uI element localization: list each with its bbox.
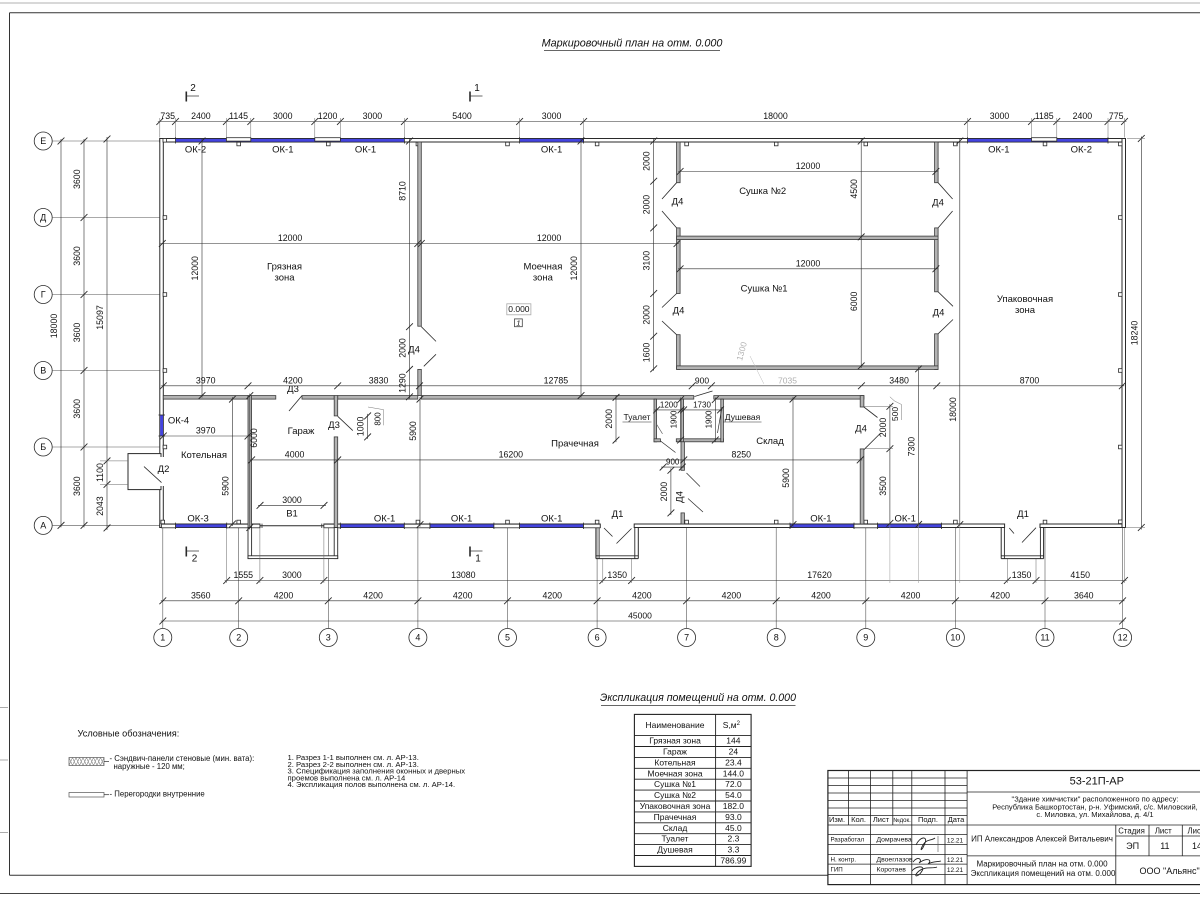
svg-text:3600: 3600 bbox=[72, 246, 82, 266]
svg-text:ОК-2: ОК-2 bbox=[1071, 145, 1092, 156]
svg-text:7300: 7300 bbox=[907, 437, 917, 457]
svg-text:1350: 1350 bbox=[1012, 570, 1032, 580]
svg-text:54.0: 54.0 bbox=[725, 790, 742, 800]
svg-text:Г: Г bbox=[41, 290, 46, 300]
svg-text:1730: 1730 bbox=[693, 400, 711, 409]
svg-text:Коротаев: Коротаев bbox=[877, 867, 907, 874]
svg-text:Д4: Д4 bbox=[673, 306, 685, 317]
svg-text:2: 2 bbox=[190, 83, 196, 94]
svg-text:ОК-1: ОК-1 bbox=[355, 145, 376, 156]
svg-text:2000: 2000 bbox=[604, 409, 614, 429]
svg-text:18000: 18000 bbox=[948, 397, 958, 422]
svg-text:Д1: Д1 bbox=[612, 509, 624, 520]
svg-text:Туалет: Туалет bbox=[624, 412, 651, 422]
svg-text:5900: 5900 bbox=[221, 476, 231, 496]
svg-text:В: В bbox=[40, 366, 46, 376]
svg-text:ОК-4: ОК-4 bbox=[168, 416, 189, 427]
svg-text:5900: 5900 bbox=[781, 468, 791, 488]
svg-text:3000: 3000 bbox=[282, 495, 302, 505]
svg-text:3830: 3830 bbox=[369, 375, 389, 385]
svg-text:- Перегородки внутренние: - Перегородки внутренние bbox=[110, 790, 205, 799]
svg-text:Д4: Д4 bbox=[408, 345, 420, 356]
svg-text:Наименование: Наименование bbox=[646, 720, 705, 730]
svg-text:800: 800 bbox=[374, 412, 383, 426]
svg-text:Кол.: Кол. bbox=[851, 815, 866, 824]
svg-text:Маркировочный план на отм. 0.0: Маркировочный план на отм. 0.000 bbox=[542, 38, 723, 50]
svg-text:Лист: Лист bbox=[1188, 826, 1200, 835]
svg-text:735: 735 bbox=[160, 111, 175, 121]
svg-text:1145: 1145 bbox=[229, 111, 248, 121]
svg-text:Условные обозначения:: Условные обозначения: bbox=[78, 729, 180, 739]
svg-text:182.0: 182.0 bbox=[723, 801, 745, 811]
svg-text:3000: 3000 bbox=[542, 111, 562, 121]
svg-text:4200: 4200 bbox=[722, 590, 742, 600]
svg-text:Экспликация помещений на отм.: Экспликация помещений на отм. 0.000 bbox=[600, 692, 796, 704]
svg-text:3600: 3600 bbox=[72, 476, 82, 496]
svg-text:ОК-1: ОК-1 bbox=[272, 145, 293, 156]
svg-text:Д4: Д4 bbox=[932, 198, 944, 209]
svg-text:13080: 13080 bbox=[451, 570, 476, 580]
svg-text:Сушка №2: Сушка №2 bbox=[654, 790, 696, 800]
svg-text:3: 3 bbox=[326, 633, 331, 643]
svg-text:2400: 2400 bbox=[191, 111, 211, 121]
svg-text:4200: 4200 bbox=[453, 590, 473, 600]
svg-text:2000: 2000 bbox=[659, 482, 669, 502]
svg-text:1600: 1600 bbox=[642, 343, 652, 363]
svg-text:3000: 3000 bbox=[273, 111, 293, 121]
svg-text:12000: 12000 bbox=[796, 258, 821, 268]
svg-text:3000: 3000 bbox=[282, 570, 302, 580]
svg-text:15097: 15097 bbox=[95, 305, 105, 330]
svg-text:0.000: 0.000 bbox=[508, 304, 530, 314]
svg-text:12.21: 12.21 bbox=[947, 867, 964, 874]
svg-text:3560: 3560 bbox=[191, 590, 211, 600]
svg-text:6000: 6000 bbox=[849, 292, 859, 312]
svg-text:1350: 1350 bbox=[607, 570, 627, 580]
svg-text:23.4: 23.4 bbox=[725, 757, 742, 767]
svg-text:12: 12 bbox=[1118, 633, 1128, 643]
svg-text:14: 14 bbox=[1192, 841, 1200, 851]
svg-text:2000: 2000 bbox=[642, 195, 652, 215]
svg-text:1200: 1200 bbox=[318, 111, 338, 121]
svg-text:2000: 2000 bbox=[642, 305, 652, 325]
svg-text:2000: 2000 bbox=[878, 418, 888, 438]
svg-text:Домрачева: Домрачева bbox=[877, 837, 912, 844]
svg-text:Моечная зона: Моечная зона bbox=[647, 768, 702, 778]
svg-text:12000: 12000 bbox=[537, 233, 562, 243]
svg-text:17620: 17620 bbox=[807, 570, 832, 580]
svg-text:Упаковочная: Упаковочная bbox=[997, 294, 1053, 305]
svg-text:Дата: Дата bbox=[948, 815, 965, 824]
svg-text:1900: 1900 bbox=[670, 410, 679, 428]
svg-text:Прачечная: Прачечная bbox=[654, 812, 697, 822]
svg-text:6000: 6000 bbox=[249, 428, 259, 448]
svg-text:3600: 3600 bbox=[72, 323, 82, 343]
svg-text:ОК-1: ОК-1 bbox=[541, 145, 562, 156]
svg-text:10: 10 bbox=[950, 633, 960, 643]
svg-text:900: 900 bbox=[695, 375, 709, 385]
svg-text:12000: 12000 bbox=[190, 256, 200, 281]
svg-text:45.0: 45.0 bbox=[725, 823, 742, 833]
svg-text:2000: 2000 bbox=[398, 338, 408, 358]
svg-text:12.21: 12.21 bbox=[947, 857, 964, 864]
svg-text:45000: 45000 bbox=[628, 611, 652, 621]
svg-text:8710: 8710 bbox=[398, 181, 408, 201]
svg-text:ООО "Альянс": ООО "Альянс" bbox=[1140, 866, 1200, 876]
svg-text:3500: 3500 bbox=[878, 476, 888, 496]
svg-text:11: 11 bbox=[1160, 841, 1169, 851]
svg-text:Стадия: Стадия bbox=[1118, 826, 1145, 835]
svg-text:2400: 2400 bbox=[1073, 111, 1093, 121]
svg-text:ОК-3: ОК-3 bbox=[187, 514, 208, 525]
svg-text:Лист: Лист bbox=[1155, 826, 1172, 835]
svg-text:4500: 4500 bbox=[849, 179, 859, 199]
svg-text:Д1: Д1 bbox=[1017, 509, 1029, 520]
svg-text:Д3: Д3 bbox=[328, 420, 340, 431]
svg-text:786.99: 786.99 bbox=[720, 856, 746, 866]
svg-text:5: 5 bbox=[505, 633, 510, 643]
svg-text:4200: 4200 bbox=[901, 590, 921, 600]
svg-text:Д4: Д4 bbox=[675, 491, 686, 503]
svg-text:900: 900 bbox=[666, 458, 680, 467]
svg-text:4000: 4000 bbox=[285, 449, 305, 459]
svg-text:12000: 12000 bbox=[569, 256, 579, 281]
svg-text:Д2: Д2 bbox=[158, 464, 170, 475]
svg-text:Б: Б bbox=[40, 442, 46, 452]
svg-text:4200: 4200 bbox=[990, 590, 1010, 600]
svg-text:В1: В1 bbox=[286, 509, 298, 520]
svg-text:3000: 3000 bbox=[990, 111, 1010, 121]
svg-text:12785: 12785 bbox=[544, 375, 569, 385]
svg-text:4200: 4200 bbox=[274, 590, 294, 600]
svg-text:ОК-1: ОК-1 bbox=[541, 514, 562, 525]
svg-text:Грязная зона: Грязная зона bbox=[649, 736, 701, 746]
svg-text:3600: 3600 bbox=[72, 169, 82, 189]
svg-text:Гараж: Гараж bbox=[288, 426, 315, 437]
svg-text:Д4: Д4 bbox=[672, 197, 684, 208]
svg-text:18000: 18000 bbox=[49, 314, 59, 339]
svg-text:2000: 2000 bbox=[642, 151, 652, 171]
svg-text:12000: 12000 bbox=[796, 161, 821, 171]
svg-text:ОК-1: ОК-1 bbox=[451, 514, 472, 525]
svg-text:Склад: Склад bbox=[756, 436, 784, 447]
svg-text:2: 2 bbox=[192, 554, 198, 565]
svg-text:Маркировочный план на отм. 0.0: Маркировочный план на отм. 0.000 bbox=[976, 860, 1108, 869]
svg-text:500: 500 bbox=[890, 407, 900, 421]
svg-text:4200: 4200 bbox=[632, 590, 652, 600]
svg-text:Склад: Склад bbox=[663, 823, 688, 833]
svg-text:8700: 8700 bbox=[1020, 375, 1040, 385]
svg-text:4. Экспликация полов выполнена: 4. Экспликация полов выполнена см. л. АР… bbox=[288, 780, 456, 789]
svg-text:3600: 3600 bbox=[72, 399, 82, 419]
svg-text:Е: Е bbox=[40, 136, 46, 146]
svg-text:53-21П-АР: 53-21П-АР bbox=[1070, 776, 1124, 788]
svg-text:2043: 2043 bbox=[95, 496, 105, 516]
svg-text:93.0: 93.0 bbox=[725, 812, 742, 822]
svg-text:ГИП: ГИП bbox=[831, 867, 843, 874]
svg-text:№док.: №док. bbox=[893, 817, 911, 824]
svg-text:наружные - 120 мм;: наружные - 120 мм; bbox=[114, 762, 185, 771]
svg-text:1290: 1290 bbox=[398, 373, 408, 393]
svg-text:3970: 3970 bbox=[196, 375, 216, 385]
svg-text:1555: 1555 bbox=[234, 570, 254, 580]
svg-text:11: 11 bbox=[1040, 633, 1049, 643]
svg-text:4200: 4200 bbox=[811, 590, 831, 600]
svg-text:1100: 1100 bbox=[95, 463, 105, 482]
svg-text:Экспликация помещений на отм.: Экспликация помещений на отм. 0.000 bbox=[971, 869, 1116, 878]
svg-text:3.3: 3.3 bbox=[727, 845, 739, 855]
svg-text:2: 2 bbox=[236, 633, 241, 643]
svg-text:зона: зона bbox=[1015, 305, 1036, 316]
svg-text:ОК-1: ОК-1 bbox=[374, 514, 395, 525]
svg-text:Сушка №2: Сушка №2 bbox=[739, 186, 786, 197]
svg-text:Д: Д bbox=[40, 213, 46, 223]
svg-text:8250: 8250 bbox=[732, 449, 752, 459]
svg-text:1900: 1900 bbox=[704, 410, 713, 428]
svg-text:24: 24 bbox=[729, 747, 739, 757]
svg-text:144.0: 144.0 bbox=[723, 768, 745, 778]
svg-text:Моечная: Моечная bbox=[523, 262, 562, 273]
svg-text:Гараж: Гараж bbox=[663, 747, 687, 757]
svg-text:Д4: Д4 bbox=[933, 308, 945, 319]
svg-text:5900: 5900 bbox=[408, 421, 418, 441]
svg-text:ОК-1: ОК-1 bbox=[810, 514, 831, 525]
svg-text:Котельная: Котельная bbox=[654, 757, 696, 767]
svg-text:72.0: 72.0 bbox=[725, 779, 742, 789]
svg-text:Прачечная: Прачечная bbox=[551, 439, 599, 450]
svg-text:4200: 4200 bbox=[543, 590, 563, 600]
svg-text:5400: 5400 bbox=[452, 111, 472, 121]
svg-text:16200: 16200 bbox=[499, 449, 524, 459]
svg-text:Подп.: Подп. bbox=[918, 815, 938, 824]
svg-text:ЭП: ЭП bbox=[1126, 841, 1139, 851]
svg-text:144: 144 bbox=[726, 736, 740, 746]
svg-text:1200: 1200 bbox=[660, 400, 678, 409]
svg-text:18240: 18240 bbox=[1129, 321, 1139, 346]
svg-text:зона: зона bbox=[274, 273, 295, 284]
svg-text:зона: зона bbox=[533, 273, 554, 284]
svg-text:Грязная: Грязная bbox=[267, 262, 302, 273]
svg-text:4200: 4200 bbox=[283, 375, 303, 385]
svg-text:775: 775 bbox=[1109, 111, 1124, 121]
svg-text:Туалет: Туалет bbox=[662, 834, 689, 844]
svg-text:Д4: Д4 bbox=[855, 424, 867, 435]
svg-text:ОК-1: ОК-1 bbox=[988, 145, 1009, 156]
svg-text:1: 1 bbox=[474, 83, 480, 94]
svg-text:Двоеглазов: Двоеглазов bbox=[877, 857, 914, 864]
svg-text:Н. контр.: Н. контр. bbox=[831, 857, 857, 864]
svg-text:2.3: 2.3 bbox=[727, 834, 739, 844]
svg-text:ИП Александров Алексей Виталье: ИП Александров Алексей Витальевич bbox=[971, 835, 1113, 844]
svg-text:Разработал: Разработал bbox=[831, 837, 865, 844]
svg-text:12.21: 12.21 bbox=[947, 838, 964, 845]
svg-text:12000: 12000 bbox=[278, 233, 303, 243]
svg-text:4: 4 bbox=[415, 633, 420, 643]
svg-text:6: 6 bbox=[595, 633, 600, 643]
svg-text:1: 1 bbox=[475, 554, 481, 565]
svg-text:Сушка №1: Сушка №1 bbox=[654, 779, 696, 789]
svg-text:3640: 3640 bbox=[1074, 590, 1094, 600]
svg-text:Душевая: Душевая bbox=[725, 412, 761, 422]
svg-text:3970: 3970 bbox=[196, 426, 216, 436]
svg-text:8: 8 bbox=[774, 633, 779, 643]
svg-text:ОК-1: ОК-1 bbox=[895, 514, 916, 525]
svg-text:1185: 1185 bbox=[1035, 111, 1054, 121]
svg-text:3100: 3100 bbox=[642, 251, 652, 271]
svg-text:1: 1 bbox=[516, 318, 520, 327]
svg-text:1000: 1000 bbox=[356, 417, 366, 437]
svg-text:1: 1 bbox=[160, 633, 165, 643]
svg-text:Котельная: Котельная bbox=[181, 450, 227, 461]
svg-text:7035: 7035 bbox=[778, 375, 797, 385]
svg-text:ОК-2: ОК-2 bbox=[185, 145, 206, 156]
svg-text:Упаковочная зона: Упаковочная зона bbox=[640, 801, 711, 811]
svg-text:А: А bbox=[40, 521, 46, 531]
svg-text:3000: 3000 bbox=[363, 111, 383, 121]
svg-text:4200: 4200 bbox=[363, 590, 383, 600]
svg-text:3480: 3480 bbox=[889, 375, 909, 385]
svg-text:Лист: Лист bbox=[873, 815, 890, 824]
svg-text:9: 9 bbox=[863, 633, 868, 643]
svg-text:Сушка №1: Сушка №1 bbox=[741, 283, 788, 294]
svg-text:18000: 18000 bbox=[763, 111, 788, 121]
svg-text:4150: 4150 bbox=[1070, 570, 1090, 580]
svg-text:с. Миловка, ул. Михайлова, д.: с. Миловка, ул. Михайлова, д. 4/1 bbox=[1036, 810, 1153, 819]
svg-text:Изм.: Изм. bbox=[829, 815, 845, 824]
svg-text:7: 7 bbox=[684, 633, 689, 643]
svg-text:Душевая: Душевая bbox=[657, 845, 693, 855]
